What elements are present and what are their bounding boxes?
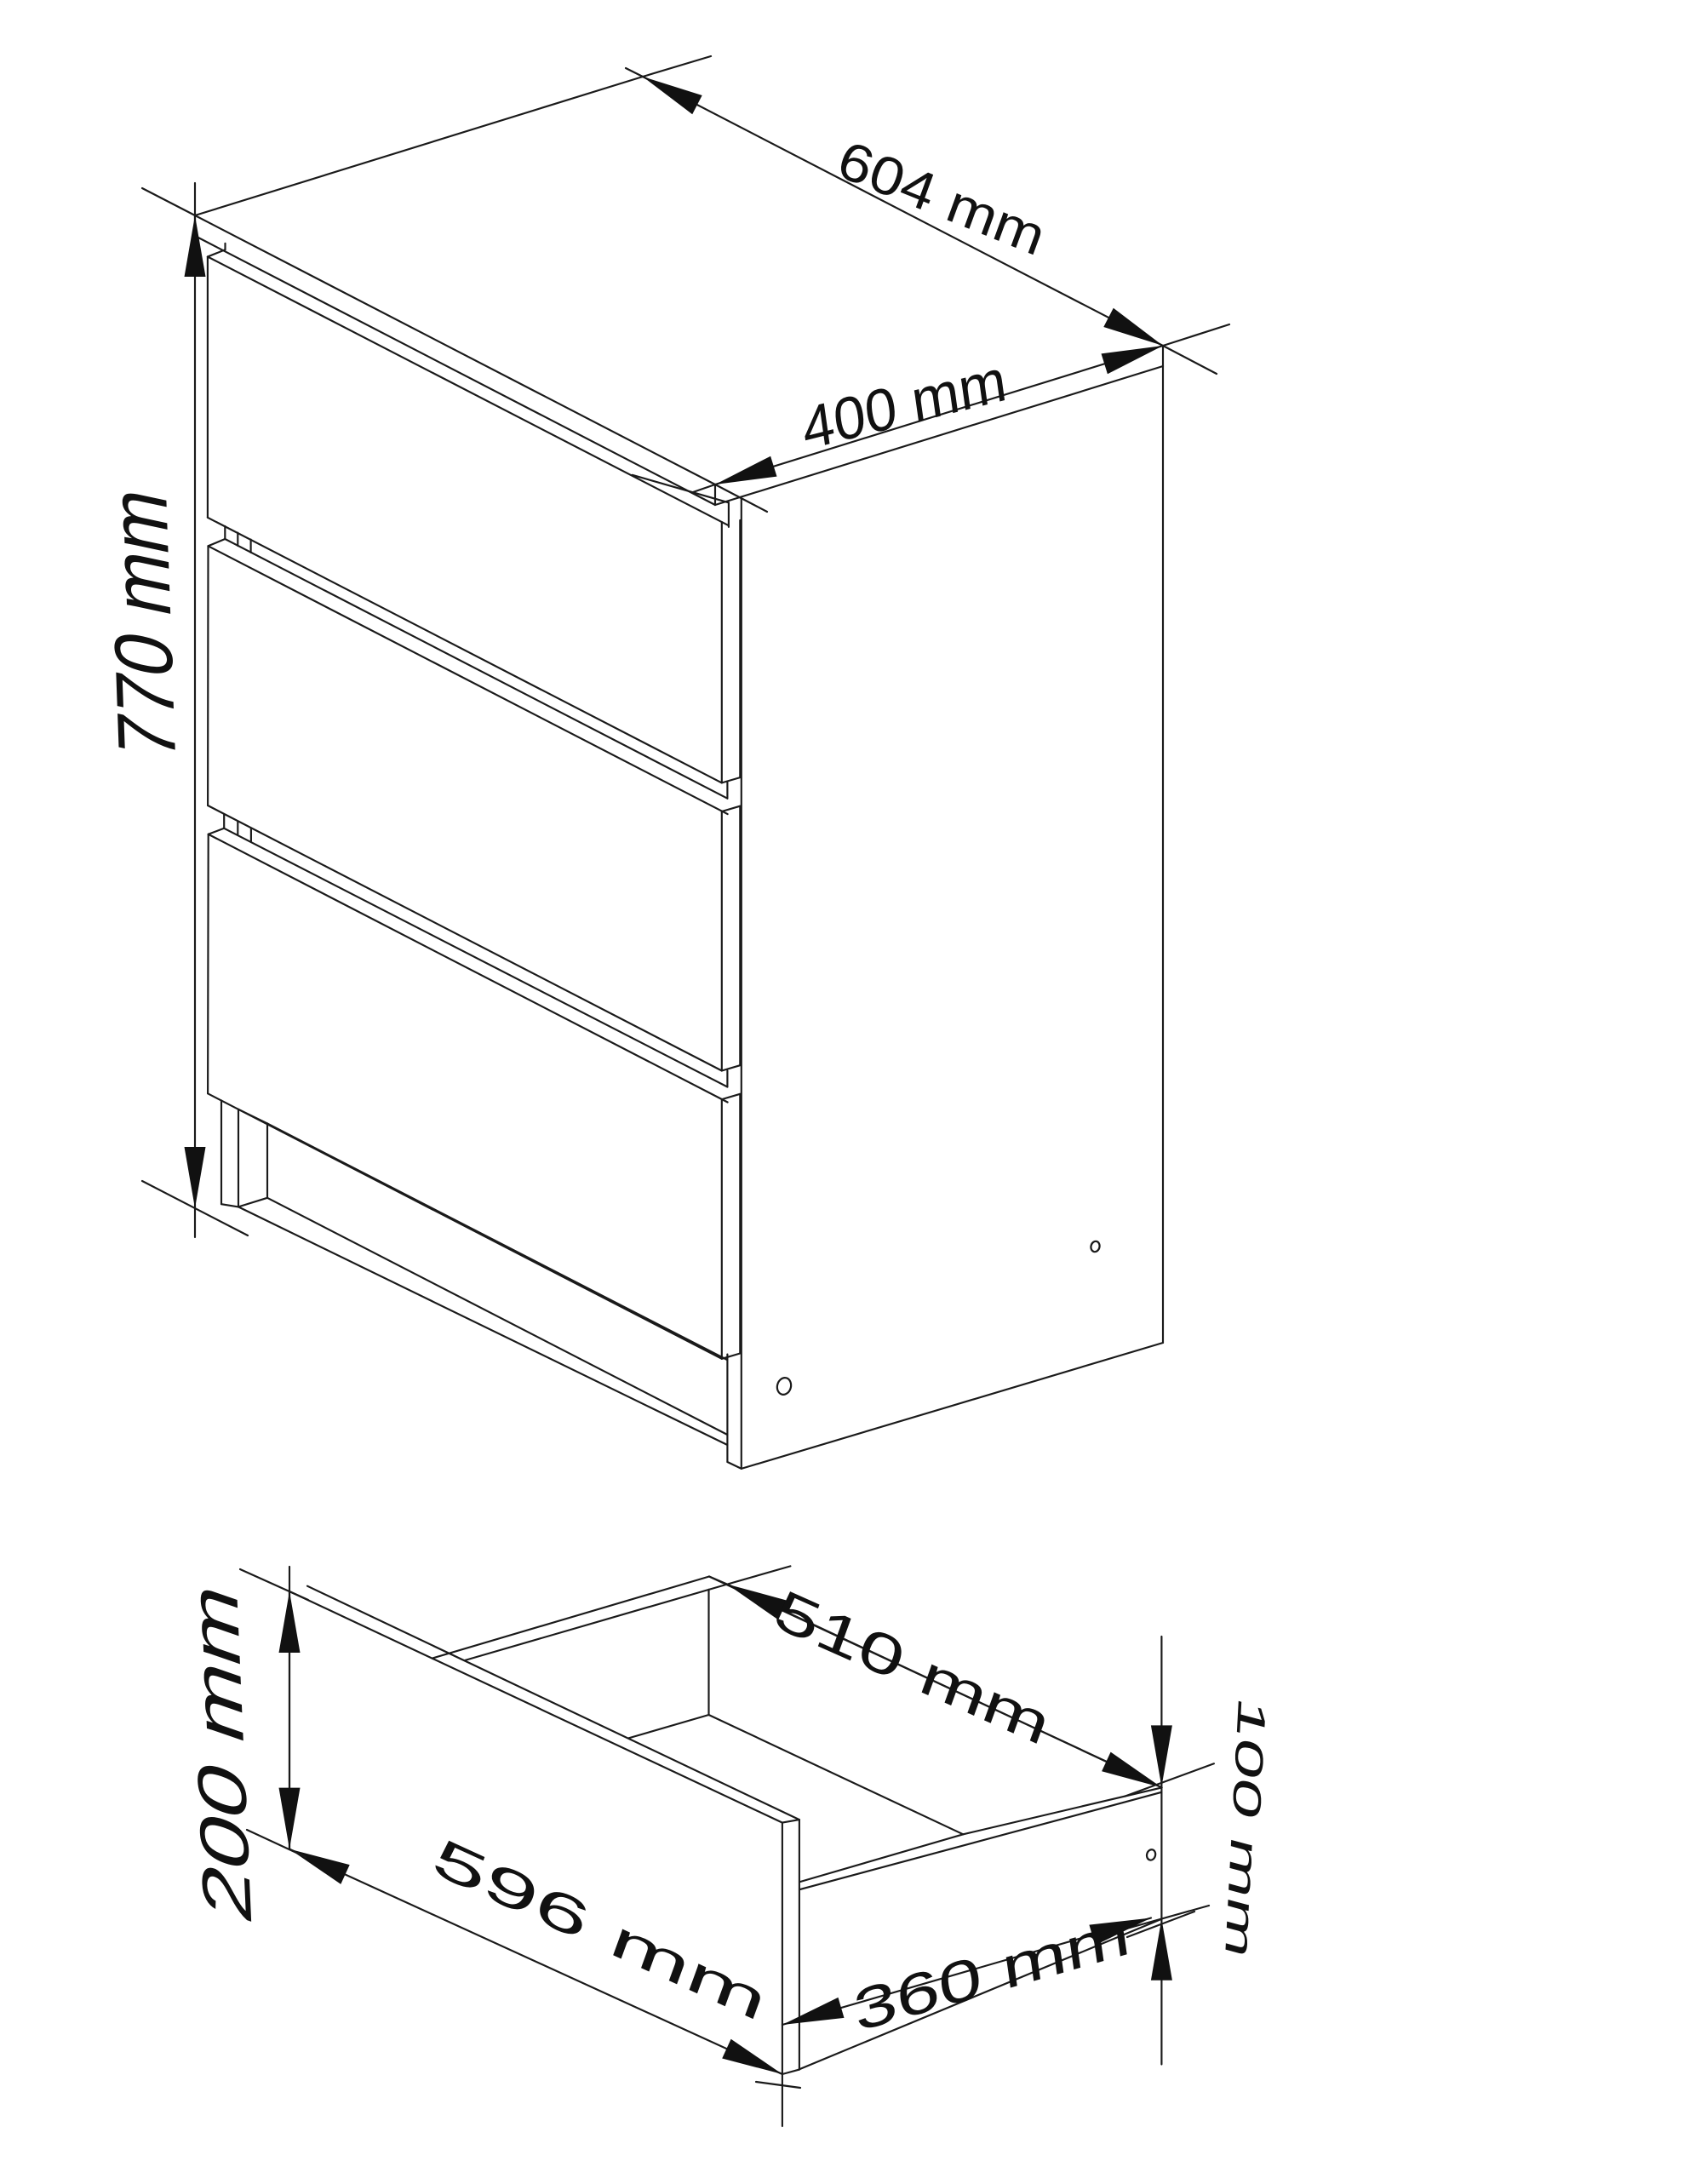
svg-text:770 mm: 770 mm bbox=[92, 479, 193, 766]
svg-text:200 mm: 200 mm bbox=[175, 1573, 266, 1932]
